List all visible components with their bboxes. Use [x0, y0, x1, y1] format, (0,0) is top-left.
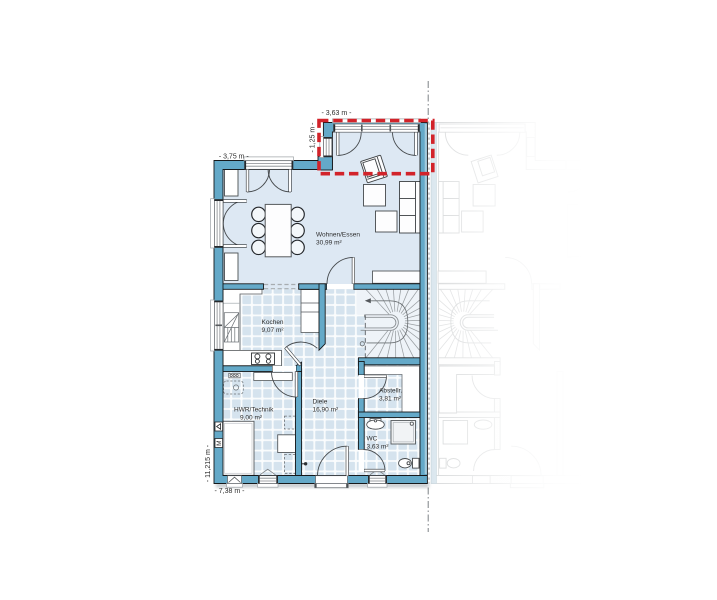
- svg-text:WC: WC: [367, 436, 378, 443]
- svg-text:9,07 m²: 9,07 m²: [262, 327, 285, 334]
- svg-text:Diele: Diele: [313, 399, 328, 406]
- svg-text:M: M: [216, 440, 223, 445]
- svg-text:30,99 m²: 30,99 m²: [316, 240, 342, 247]
- svg-text:3,81 m²: 3,81 m²: [379, 396, 402, 403]
- svg-text:Kochen: Kochen: [262, 319, 284, 326]
- svg-text:- 3,75 m -: - 3,75 m -: [219, 154, 250, 161]
- svg-text:9,00 m²: 9,00 m²: [240, 415, 263, 422]
- svg-text:Abstellr.: Abstellr.: [379, 388, 402, 395]
- svg-text:3,63 m²: 3,63 m²: [367, 444, 390, 451]
- svg-text:HWR/Technik: HWR/Technik: [234, 407, 274, 414]
- svg-text:- 7,38 m -: - 7,38 m -: [215, 488, 246, 495]
- svg-text:Wohnen/Essen: Wohnen/Essen: [316, 232, 360, 239]
- svg-text:- 11,215 m -: - 11,215 m -: [205, 444, 212, 482]
- svg-text:- 1,25 m -: - 1,25 m -: [309, 122, 316, 153]
- svg-text:- 3,63 m -: - 3,63 m -: [322, 110, 353, 117]
- svg-text:16,90 m²: 16,90 m²: [313, 407, 339, 414]
